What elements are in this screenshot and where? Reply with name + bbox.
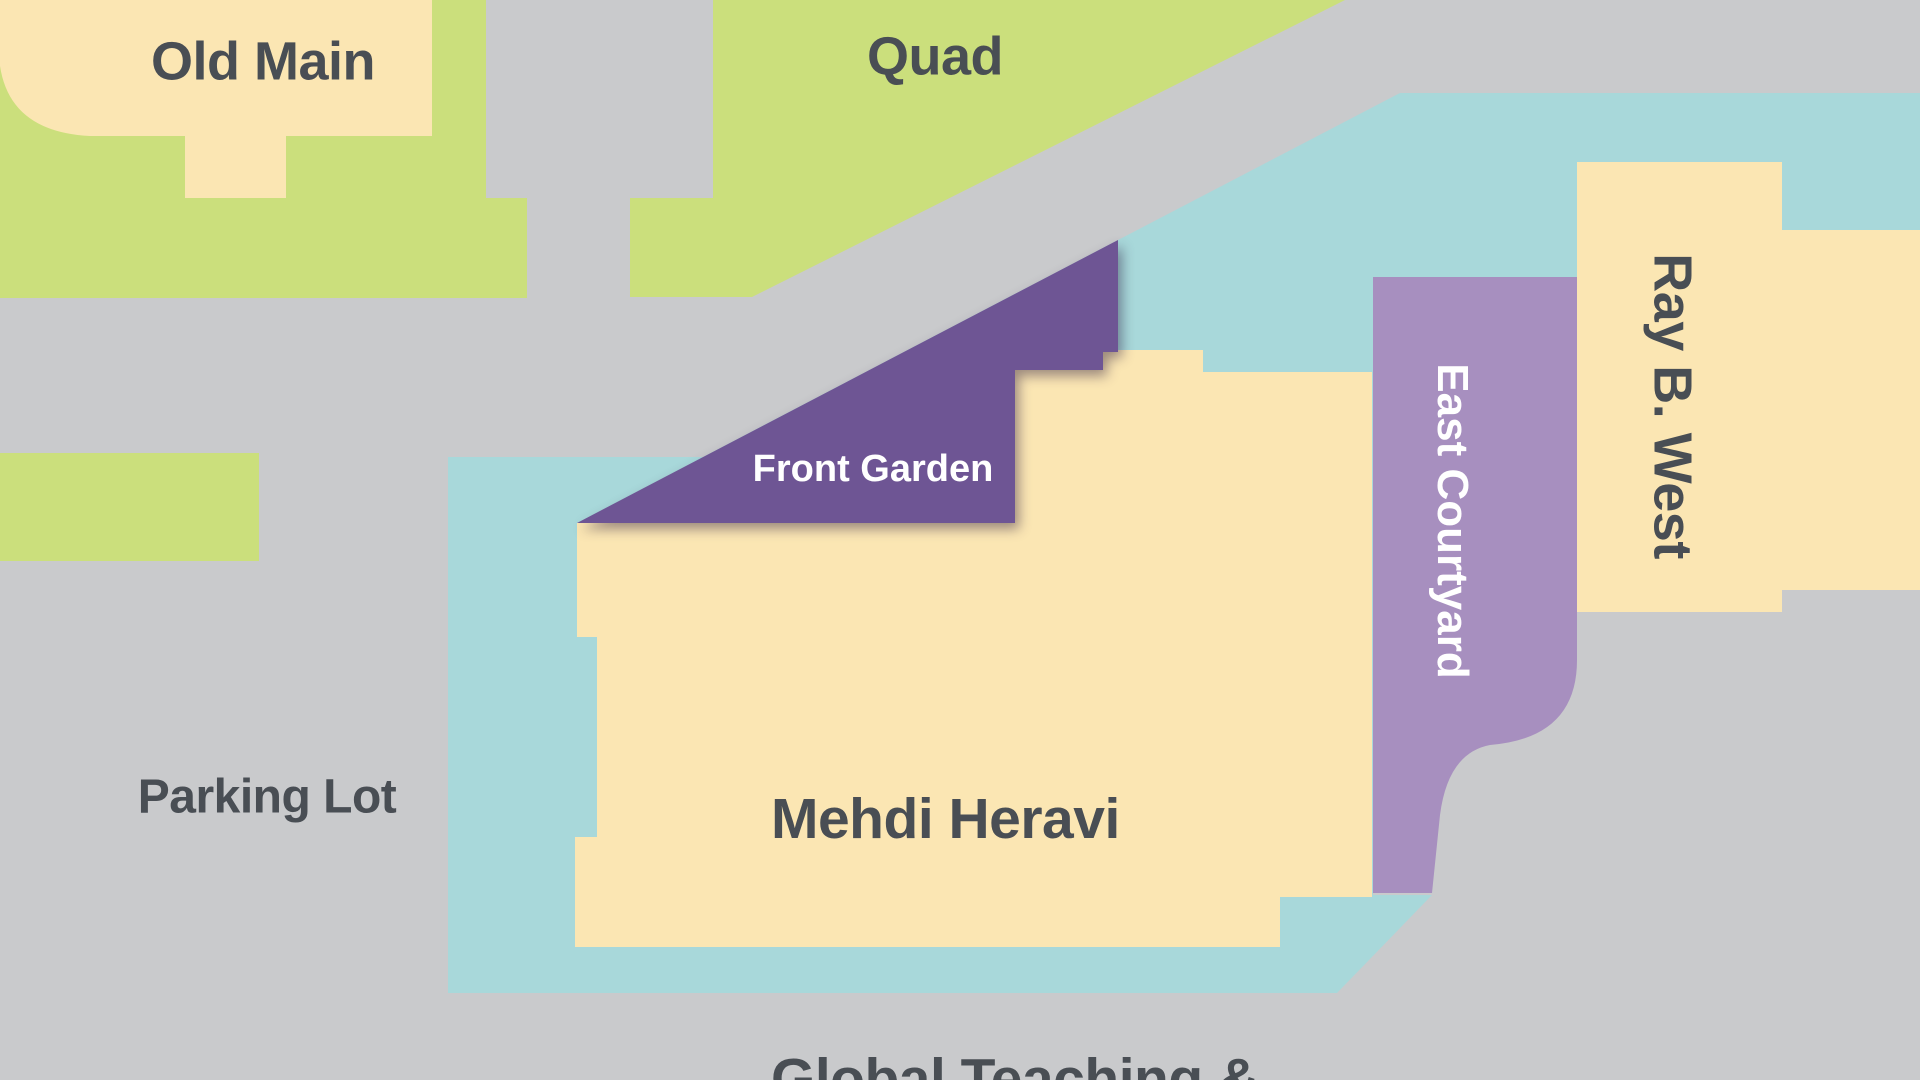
quad-label: Quad	[867, 27, 1003, 86]
front-garden-label: Front Garden	[753, 449, 994, 491]
ray-b-west-label: Ray B. West	[1642, 253, 1701, 559]
campus-map: Old Main Quad Front Garden Mehdi Heravi …	[0, 0, 1920, 1080]
gtlc-label-line1: Mehdi Heravi	[771, 776, 1259, 863]
gtlc-label-line2: Global Teaching &	[771, 1036, 1259, 1080]
parking-lot-label: Parking Lot	[138, 772, 397, 825]
gtlc-label: Mehdi Heravi Global Teaching & Learning …	[771, 603, 1259, 1080]
east-courtyard-label: East Courtyard	[1428, 363, 1476, 678]
old-main-label: Old Main	[151, 32, 375, 91]
west-lawn-strip	[0, 453, 259, 561]
